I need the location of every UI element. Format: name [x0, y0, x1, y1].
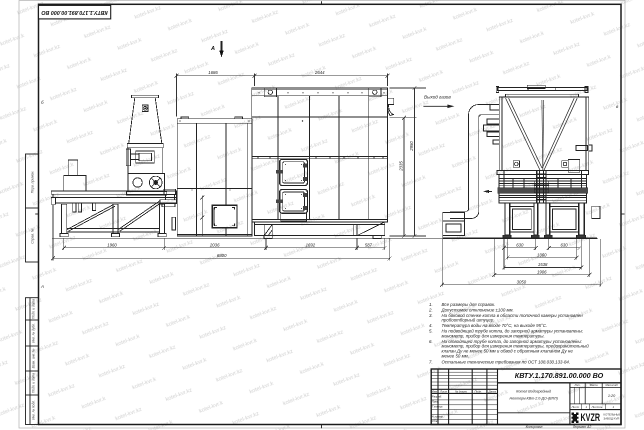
svg-text:Подп.: Подп. [475, 389, 483, 393]
svg-text:№ докум.: № докум. [455, 389, 468, 393]
svg-text:2036: 2036 [209, 242, 220, 247]
svg-text:1960: 1960 [107, 242, 117, 247]
svg-text:7.: 7. [429, 359, 433, 364]
svg-text:пробоотборный штуцер.: пробоотборный штуцер. [442, 318, 495, 323]
svg-text:Инв. № подл.: Инв. № подл. [32, 400, 36, 420]
svg-text:Допустимое отклонение ±100 мм.: Допустимое отклонение ±100 мм. [441, 307, 514, 312]
svg-text:менее 50 мм.: менее 50 мм. [442, 353, 469, 358]
svg-text:1:20: 1:20 [608, 394, 616, 398]
svg-text:А: А [210, 46, 215, 52]
svg-text:Лист: Лист [571, 405, 580, 409]
svg-text:1692: 1692 [306, 242, 316, 247]
svg-text:6.: 6. [429, 339, 433, 344]
svg-text:манометр, прибор для измерения: манометр, прибор для измерения температу… [442, 333, 545, 338]
svg-text:Изм: Изм [432, 389, 437, 393]
svg-text:3.: 3. [429, 313, 433, 318]
svg-text:Подп. и дата: Подп. и дата [32, 299, 36, 319]
svg-text:Все размеры для справок.: Все размеры для справок. [442, 302, 496, 307]
svg-text:Инв. № дубл.: Инв. № дубл. [32, 323, 36, 343]
svg-text:А: А [40, 284, 44, 289]
svg-text:Неотерм КВт-2.0-ДО-(ВПЛ): Неотерм КВт-2.0-ДО-(ВПЛ) [510, 397, 558, 401]
svg-text:Н.контр.: Н.контр. [432, 414, 444, 418]
svg-text:Формат А2: Формат А2 [573, 425, 592, 429]
svg-text:630: 630 [516, 243, 524, 248]
svg-text:1686: 1686 [208, 70, 218, 75]
svg-text:Остальные технические требован: Остальные технические требования по ОСТ … [442, 359, 571, 364]
svg-text:2.: 2. [428, 307, 433, 312]
svg-text:6800: 6800 [217, 253, 227, 258]
svg-text:1360: 1360 [537, 252, 547, 257]
svg-text:Температура воды на входе 70°С: Температура воды на входе 70°С, на выход… [442, 323, 548, 328]
svg-text:2950: 2950 [409, 141, 414, 152]
svg-text:Пров.: Пров. [432, 400, 440, 404]
svg-text:KVZR: KVZR [581, 412, 601, 424]
svg-text:Масса: Масса [590, 383, 598, 387]
svg-text:Утв.: Утв. [432, 419, 439, 423]
svg-text:Разраб.: Разраб. [432, 395, 442, 399]
svg-text:Копировал: Копировал [526, 425, 543, 429]
svg-text:Т.контр.: Т.контр. [432, 405, 444, 409]
svg-text:5.: 5. [429, 329, 433, 334]
svg-text:Перв. примен.: Перв. примен. [31, 171, 35, 194]
svg-text:Подп. и дата: Подп. и дата [32, 373, 36, 393]
svg-text:587: 587 [365, 242, 373, 247]
svg-text:1906: 1906 [537, 270, 547, 275]
svg-text:Масштаб: Масштаб [606, 383, 619, 387]
svg-text:630: 630 [561, 243, 569, 248]
svg-text:ЗАВОД KVR: ЗАВОД KVR [604, 417, 620, 421]
svg-text:КВТУ.1.170.891.00.000 ВО: КВТУ.1.170.891.00.000 ВО [41, 9, 108, 15]
svg-text:2335: 2335 [399, 161, 404, 172]
svg-text:Взам. инв. №: Взам. инв. № [32, 348, 36, 368]
svg-text:Дата: Дата [488, 389, 497, 393]
svg-text:КВТУ.1.170.891.00.000 ВО: КВТУ.1.170.891.00.000 ВО [515, 371, 604, 380]
svg-text:4.: 4. [429, 323, 433, 328]
svg-text:Выход газов: Выход газов [424, 95, 451, 100]
svg-text:1538: 1538 [538, 262, 548, 267]
svg-text:2644: 2644 [314, 70, 325, 75]
svg-text:3050: 3050 [517, 279, 527, 284]
svg-text:Справ. №: Справ. № [31, 228, 35, 244]
svg-text:Лит.: Лит. [573, 383, 580, 387]
svg-text:1.: 1. [429, 302, 433, 307]
svg-text:Листов: Листов [591, 405, 603, 409]
svg-text:Лист: Лист [439, 389, 448, 393]
svg-text:Котел Водогрейный: Котел Водогрейный [516, 390, 551, 394]
